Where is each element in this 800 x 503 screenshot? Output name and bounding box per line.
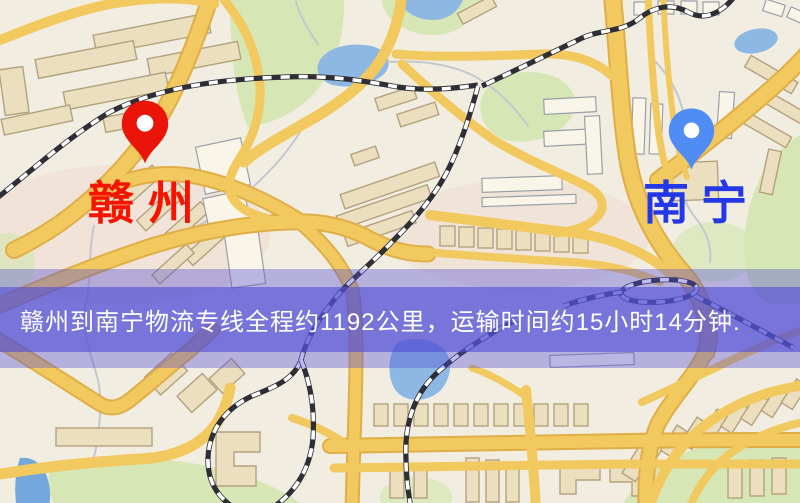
origin-city-label: 赣州 (88, 181, 208, 227)
map-canvas[interactable] (0, 0, 800, 503)
map-pin-icon (668, 103, 715, 175)
map-pin-icon (121, 97, 169, 167)
origin-marker[interactable] (121, 97, 169, 167)
logistics-route-map: 赣州到南宁物流专线全程约1192公里，运输时间约15小时14分钟. 赣州 南宁 (0, 0, 800, 503)
destination-marker[interactable] (668, 103, 715, 175)
route-info-text: 赣州到南宁物流专线全程约1192公里，运输时间约15小时14分钟. (0, 287, 800, 352)
destination-city-label: 南宁 (643, 181, 759, 227)
